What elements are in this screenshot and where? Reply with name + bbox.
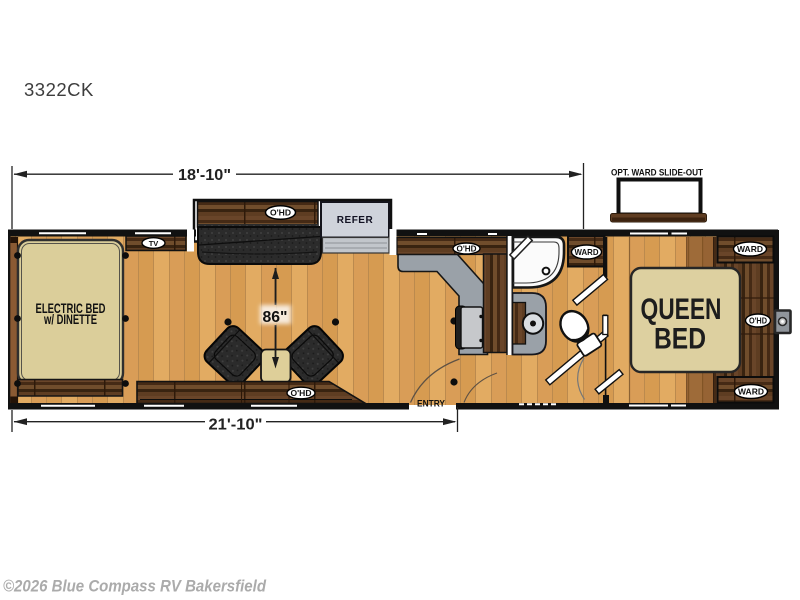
svg-text:WARD: WARD (738, 387, 764, 397)
svg-text:3322CK: 3322CK (24, 79, 94, 100)
svg-text:w/ DINETTE: w/ DINETTE (43, 311, 97, 327)
svg-text:BED: BED (654, 323, 706, 356)
svg-text:WARD: WARD (575, 247, 599, 257)
svg-text:WARD: WARD (737, 244, 763, 254)
svg-text:ENTRY: ENTRY (417, 399, 445, 409)
svg-text:O'HD: O'HD (457, 245, 477, 254)
svg-text:QUEEN: QUEEN (641, 293, 722, 326)
svg-text:86": 86" (263, 309, 288, 326)
svg-text:TV: TV (149, 239, 159, 248)
svg-text:©2026 Blue Compass RV Bakersfi: ©2026 Blue Compass RV Bakersfield (3, 578, 267, 596)
svg-text:21'-10": 21'-10" (209, 417, 263, 434)
svg-text:O'HD: O'HD (270, 208, 291, 218)
svg-text:O'HD: O'HD (291, 388, 312, 398)
svg-text:OPT. WARD SLIDE-OUT: OPT. WARD SLIDE-OUT (611, 168, 703, 178)
svg-text:18'-10": 18'-10" (178, 167, 231, 184)
svg-text:REFER: REFER (337, 215, 374, 226)
svg-text:O'HD: O'HD (749, 316, 767, 325)
